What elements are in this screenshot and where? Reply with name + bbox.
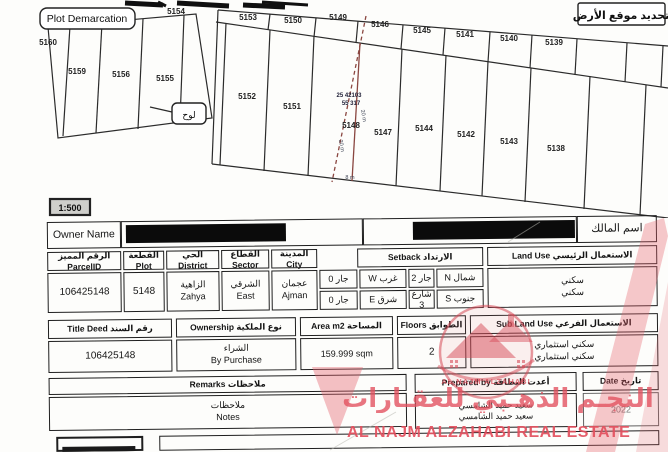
city-value-en: Ajman bbox=[282, 290, 308, 302]
setback-north-label: شمال N bbox=[436, 268, 483, 288]
plot-value: 5148 bbox=[123, 272, 164, 312]
prepared-by-header: أعدت البطاقة Prepared by bbox=[415, 372, 577, 393]
district-header: الحي District bbox=[166, 250, 219, 270]
setback-west-value: جار 0 bbox=[319, 269, 357, 288]
owner-name-label-ar: اسم المالك bbox=[577, 215, 657, 243]
remarks-value-ar: ملاحظات bbox=[211, 400, 245, 412]
prepared-by-value: سعيد حميد الشامسي سعيد حميد الشامسي bbox=[415, 393, 577, 429]
city-value-ar: عجمان bbox=[282, 278, 308, 290]
remarks-value-en: Notes bbox=[216, 412, 240, 424]
ownership-value-en: By Purchase bbox=[211, 355, 262, 367]
prepared-by-name-2: سعيد حميد الشامسي bbox=[459, 411, 534, 423]
plot-card-table: Owner Name اسم المالك الرقم المميز Parce… bbox=[0, 0, 668, 452]
sub-land-use-value-2: سكني استثماري bbox=[534, 351, 594, 363]
sector-header: القطاع Sector bbox=[221, 249, 269, 269]
setback-south-label: جنوب S bbox=[437, 289, 484, 309]
sub-land-use-header: الاستعمال الفرعي Sub Land Use bbox=[470, 313, 658, 334]
plot-header: القطعة Plot bbox=[123, 251, 164, 270]
redacted-owner-name-ar bbox=[413, 220, 575, 240]
setback-east-label: شرق E bbox=[360, 290, 407, 310]
ownership-header: نوع الملكية Ownership bbox=[176, 317, 296, 337]
sector-value-en: East bbox=[237, 291, 255, 303]
title-deed-value: 106425148 bbox=[48, 340, 172, 373]
sector-value: الشرقي East bbox=[221, 270, 269, 311]
date-header: تاريخ Date bbox=[583, 371, 659, 391]
ownership-value-ar: الشراء bbox=[224, 343, 249, 355]
sector-value-ar: الشرقي bbox=[230, 279, 260, 291]
setback-header: الارتداد Setback bbox=[357, 247, 483, 267]
remarks-header: ملاحظات Remarks bbox=[49, 374, 407, 395]
floors-value: 2 bbox=[397, 336, 466, 369]
title-deed-header: رقم السند Title Deed bbox=[48, 319, 172, 339]
bottom-wide-box bbox=[159, 430, 659, 451]
district-value-ar: الزاهية bbox=[180, 280, 205, 292]
parcel-id-header: الرقم المميز ParcelID bbox=[47, 251, 121, 271]
plot-demarcation-document: 25 42103 55 317 20 m 20 m 8 m 5160515951… bbox=[0, 0, 668, 452]
sub-land-use-value: سكني استثماري سكني استثماري bbox=[470, 334, 658, 368]
land-use-value-2: سكني bbox=[561, 287, 584, 299]
city-value: عجمان Ajman bbox=[271, 270, 317, 311]
parcel-id-value: 106425148 bbox=[47, 272, 121, 313]
sub-land-use-value-1: سكني استثماري bbox=[534, 339, 594, 351]
land-use-value-1: سكني bbox=[561, 275, 584, 287]
land-use-header: الاستعمال الرئيسي Land Use bbox=[487, 245, 657, 266]
land-use-value: سكني سكني bbox=[487, 266, 657, 308]
floors-header: الطوابق Floors bbox=[397, 315, 466, 335]
city-header: المدينة City bbox=[271, 249, 317, 269]
bottom-small-box-content bbox=[62, 446, 135, 452]
district-value: الزاهية Zahya bbox=[166, 271, 219, 312]
remarks-value: ملاحظات Notes bbox=[49, 393, 407, 431]
setback-north-value: جار 2 bbox=[408, 269, 434, 288]
area-header: المساحة Area m2 bbox=[300, 316, 393, 336]
area-value: 159.999 sqm bbox=[300, 337, 393, 370]
setback-west-label: غرب W bbox=[359, 269, 406, 289]
owner-name-label-en: Owner Name bbox=[47, 221, 121, 249]
date-value: 2022 bbox=[583, 392, 659, 427]
ownership-value: الشراء By Purchase bbox=[176, 338, 296, 371]
district-value-en: Zahya bbox=[181, 291, 206, 303]
setback-east-value: جار 0 bbox=[320, 290, 358, 309]
setback-south-value: شارع 3 bbox=[409, 290, 435, 309]
prepared-by-name-1: سعيد حميد الشامسي bbox=[459, 399, 534, 411]
redacted-owner-name-en bbox=[126, 223, 286, 243]
